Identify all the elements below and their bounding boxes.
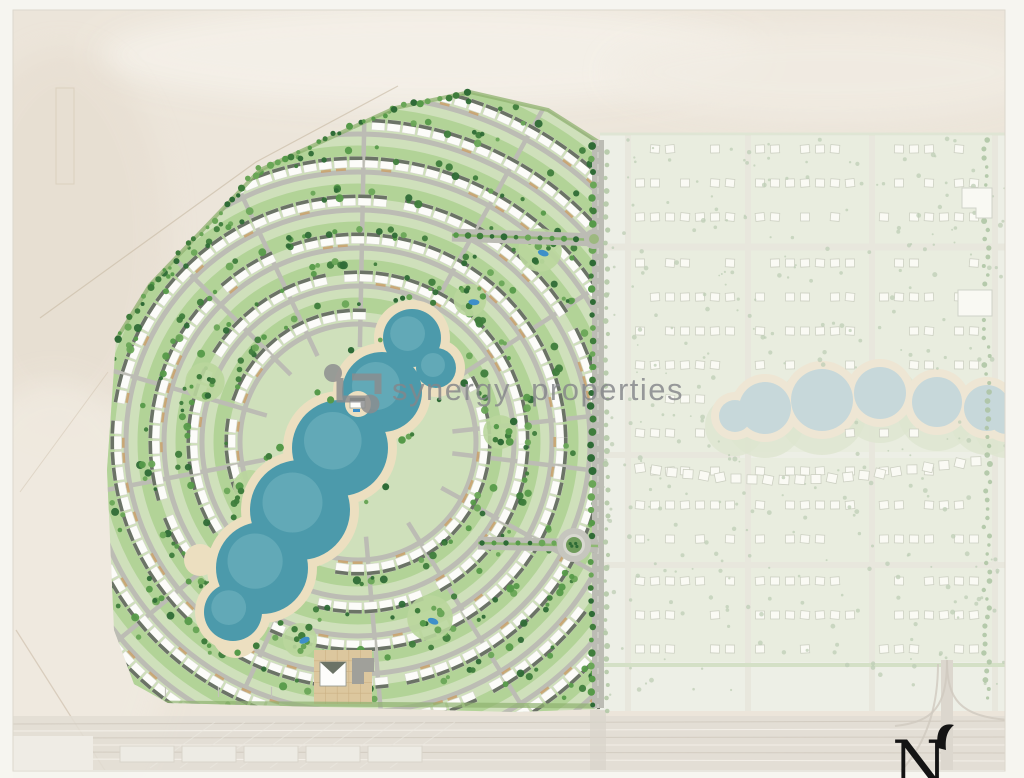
masterplan-screenshot: synergy properties N [0, 0, 1024, 778]
north-indicator: N [892, 724, 954, 778]
master-plan-map: synergy properties N [0, 0, 1024, 778]
watermark-text: synergy properties [392, 372, 684, 407]
phase2-community-faded [600, 133, 1024, 711]
